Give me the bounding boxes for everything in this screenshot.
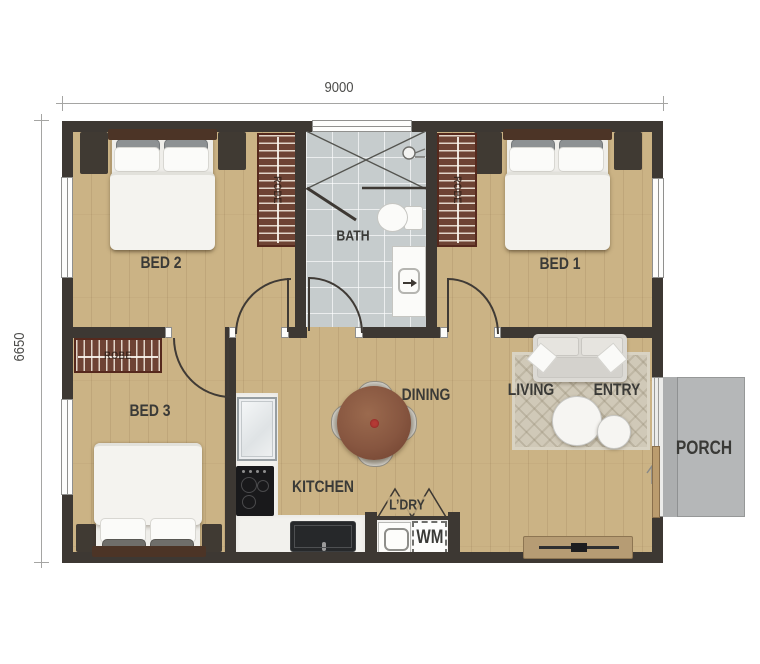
- bed1-door-leaf: [447, 278, 449, 332]
- room-label-porch: PORCH: [676, 438, 732, 460]
- room-label-bed1: BED 1: [539, 254, 580, 274]
- washing-machine-label: WM: [416, 527, 443, 549]
- bed3-duvet: [94, 443, 202, 525]
- bedside-table: [614, 132, 642, 170]
- bed1-duvet: [505, 172, 610, 250]
- bed1-headboard: [503, 129, 612, 140]
- washing-machine: WM: [412, 521, 447, 555]
- robe-label-bed2: ROBE: [271, 176, 283, 204]
- bedside-table: [218, 132, 246, 170]
- laundry-tub: [378, 522, 411, 553]
- coffee-table-large: [552, 396, 602, 446]
- room-label-laundry: L’DRY: [387, 497, 426, 514]
- bed1-pillow: [558, 147, 604, 172]
- room-label-dining: DINING: [402, 385, 451, 405]
- floor-plan: 9000 6650: [0, 0, 760, 664]
- door-jamb: [165, 327, 172, 338]
- dimension-tick: [34, 120, 49, 121]
- bed1-pillow: [509, 147, 555, 172]
- vanity-tap-icon: [402, 278, 418, 288]
- room-label-bath: BATH: [336, 228, 369, 245]
- window-bed3: [61, 399, 73, 495]
- room-label-living: LIVING: [508, 380, 554, 400]
- dimension-tick: [663, 96, 664, 111]
- coffee-table-small: [597, 415, 631, 449]
- cooktop: [236, 466, 274, 516]
- fridge: [237, 397, 277, 461]
- robe-label-bed3: ROBE: [104, 350, 132, 362]
- laundry-wall-right: [448, 512, 460, 563]
- bath-wall-right: [426, 131, 437, 338]
- shower-icon: [306, 131, 427, 223]
- room-label-bed2: BED 2: [140, 253, 181, 273]
- room-label-bed3: BED 3: [129, 401, 170, 421]
- bed2-pillow: [163, 147, 209, 172]
- bed3-headboard: [92, 546, 206, 557]
- bed2-duvet: [110, 172, 215, 250]
- hall-wall-bed2: [72, 327, 167, 338]
- bedside-table: [80, 132, 108, 174]
- hall-wall-bath: [362, 327, 442, 338]
- bed2-pillow: [114, 147, 160, 172]
- laundry-wall-left: [365, 512, 377, 563]
- window-bed1: [652, 178, 664, 278]
- bath-wall-left: [295, 131, 306, 338]
- dimension-tick: [62, 96, 63, 111]
- bed2-door-leaf: [287, 278, 289, 332]
- bath-door-leaf: [308, 277, 310, 331]
- robe-label-bed1: ROBE: [451, 176, 463, 204]
- window-bed2: [61, 177, 73, 278]
- room-label-kitchen: KITCHEN: [292, 477, 354, 497]
- bedside-table: [474, 132, 502, 174]
- dimension-line-top: [56, 103, 668, 104]
- entry-door-panel: [652, 446, 660, 518]
- dimension-depth-label: 6650: [12, 332, 28, 361]
- bed3-door-leaf: [227, 338, 229, 396]
- dimension-width-label: 9000: [324, 80, 353, 96]
- dimension-line-left: [41, 114, 42, 568]
- room-label-entry: ENTRY: [594, 380, 641, 400]
- bed2-headboard: [108, 129, 217, 140]
- exterior-wall-right-lower: [652, 517, 663, 563]
- dimension-tick: [34, 562, 49, 563]
- tv-unit: [523, 536, 633, 559]
- kitchen-sink: [290, 521, 356, 552]
- table-centerpiece: [370, 419, 379, 428]
